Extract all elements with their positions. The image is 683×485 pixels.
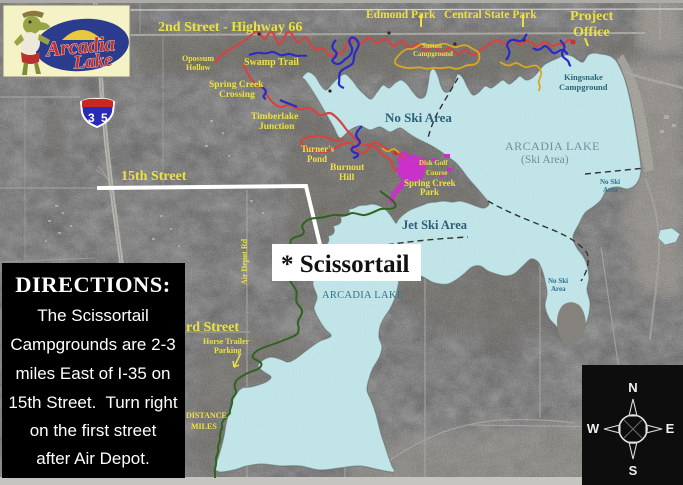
svg-text:Central State Park: Central State Park: [444, 9, 537, 21]
svg-text:15th Street: 15th Street: [121, 169, 187, 184]
svg-text:W: W: [587, 421, 600, 436]
svg-text:No Ski: No Ski: [548, 277, 568, 285]
svg-text:miles East of I-35 on: miles East of I-35 on: [16, 364, 171, 383]
svg-text:Kingsnake: Kingsnake: [564, 72, 603, 82]
svg-text:Project: Project: [570, 9, 614, 24]
svg-text:Edmond Park: Edmond Park: [366, 9, 436, 21]
svg-text:after Air Depot.: after Air Depot.: [36, 449, 149, 468]
svg-text:ARCADIA LAKE: ARCADIA LAKE: [322, 290, 403, 301]
svg-text:ARCADIA LAKE: ARCADIA LAKE: [505, 139, 600, 153]
svg-text:Swamp Trail: Swamp Trail: [244, 57, 299, 68]
svg-text:Lake: Lake: [72, 49, 114, 73]
svg-text:2nd Street - Highway 66: 2nd Street - Highway 66: [158, 20, 302, 35]
svg-text:Spring Creek: Spring Creek: [209, 80, 264, 90]
svg-text:* Scissortail: * Scissortail: [281, 251, 410, 278]
svg-text:Campground: Campground: [559, 82, 608, 92]
svg-text:Campgrounds are 2-3: Campgrounds are 2-3: [10, 335, 175, 354]
svg-text:Hollow: Hollow: [186, 63, 211, 72]
svg-text:Campground: Campground: [413, 50, 453, 58]
svg-text:Hill: Hill: [339, 173, 355, 183]
svg-text:Timberlake: Timberlake: [251, 112, 298, 122]
svg-text:The Scissortail: The Scissortail: [37, 306, 148, 325]
svg-text:No Ski Area: No Ski Area: [385, 110, 452, 125]
svg-text:3: 3: [88, 111, 95, 125]
svg-text:Sutton: Sutton: [422, 42, 442, 50]
svg-text:Jet Ski Area: Jet Ski Area: [402, 218, 468, 232]
svg-text:Course: Course: [426, 169, 447, 177]
svg-text:DISTANCE: DISTANCE: [186, 411, 227, 420]
svg-text:Pond: Pond: [307, 154, 327, 164]
svg-text:Disk Golf: Disk Golf: [419, 159, 448, 167]
svg-text:15th Street. Turn right: 15th Street. Turn right: [8, 393, 177, 412]
svg-text:N: N: [628, 380, 637, 395]
svg-text:Burnout: Burnout: [330, 163, 365, 173]
svg-text:E: E: [666, 421, 675, 436]
svg-text:Area: Area: [551, 285, 566, 293]
svg-text:Air Depot Rd: Air Depot Rd: [240, 238, 249, 285]
svg-text:S: S: [629, 463, 638, 478]
svg-text:DIRECTIONS:: DIRECTIONS:: [15, 272, 171, 297]
svg-text:Junction: Junction: [259, 122, 295, 132]
svg-text:Park: Park: [420, 187, 439, 197]
svg-text:No Ski: No Ski: [600, 178, 620, 186]
svg-text:Parking: Parking: [214, 346, 242, 355]
svg-text:on the first street: on the first street: [30, 421, 157, 440]
svg-text:MILES: MILES: [191, 422, 217, 431]
svg-text:Crossing: Crossing: [219, 90, 255, 100]
svg-text:Turner's: Turner's: [301, 144, 335, 154]
svg-text:rd Street: rd Street: [186, 320, 239, 335]
svg-text:Area: Area: [603, 186, 618, 194]
svg-text:5: 5: [101, 111, 108, 125]
svg-text:(Ski Area): (Ski Area): [521, 154, 569, 166]
svg-text:Office: Office: [573, 25, 610, 40]
svg-text:Horse Trailer: Horse Trailer: [203, 337, 250, 346]
svg-text:Opossum: Opossum: [182, 54, 214, 63]
